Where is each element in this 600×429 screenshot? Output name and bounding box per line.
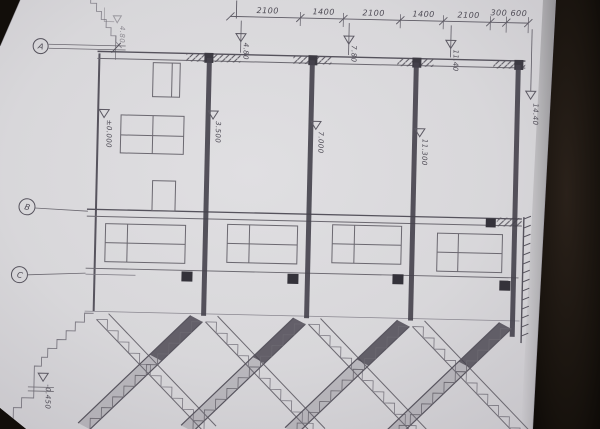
level-label-7-000: 7.000 bbox=[316, 131, 325, 153]
photo-of-architectural-drawing: 2100 1400 2100 1400 2100 300 600 4.80 7.… bbox=[0, 0, 600, 429]
level-label-0-000: ±0.000 bbox=[104, 120, 113, 149]
level-label-14-40: 14.40 bbox=[531, 103, 540, 125]
svg-text:4.80: 4.80 bbox=[118, 26, 126, 44]
level-label-7-80: 7.80 bbox=[349, 45, 357, 63]
dim-label-6: 300 bbox=[490, 8, 507, 17]
section-drawing-photo: 2100 1400 2100 1400 2100 300 600 4.80 7.… bbox=[0, 0, 600, 429]
dim-label-4: 1400 bbox=[412, 10, 435, 20]
dim-label-5: 2100 bbox=[457, 11, 480, 21]
dim-label-1: 2100 bbox=[256, 6, 279, 16]
level-label-4-80: 4.80 bbox=[241, 43, 249, 61]
level-label-3-500: 3.500 bbox=[213, 121, 222, 143]
dim-label-3: 2100 bbox=[362, 8, 385, 18]
level-label-11-40: 11.40 bbox=[451, 49, 460, 71]
level-label-minus-0-450: -0.450 bbox=[43, 384, 52, 409]
level-label-11-300: 11.300 bbox=[420, 139, 429, 166]
dim-label-7: 600 bbox=[510, 9, 527, 18]
dim-label-2: 1400 bbox=[312, 7, 335, 17]
